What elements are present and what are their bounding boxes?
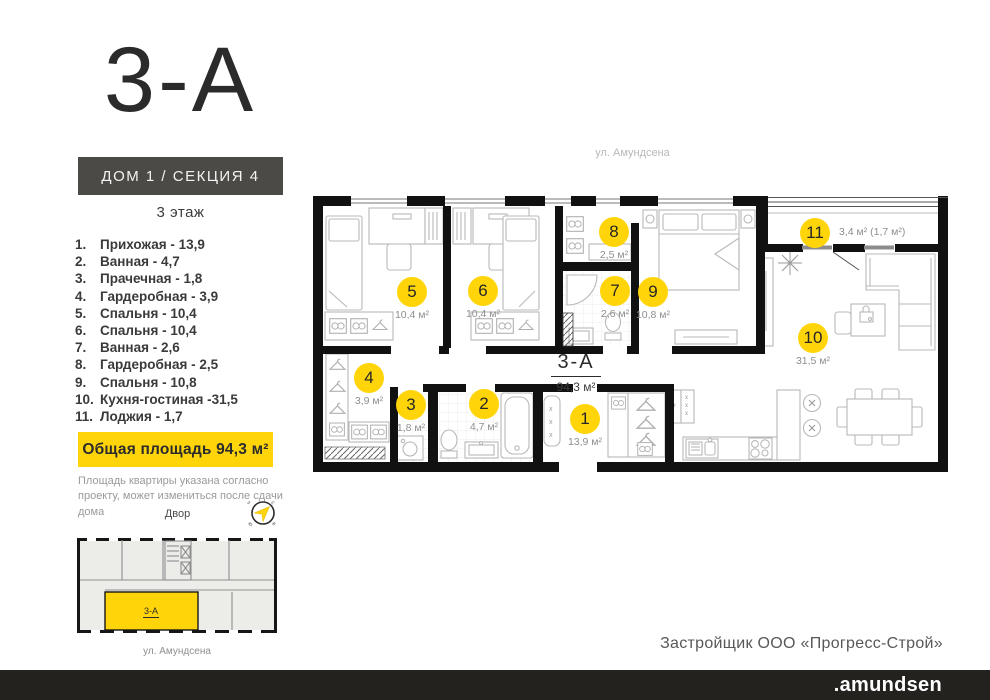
room-list-item: 4.Гардеробная - 3,9 — [75, 288, 310, 305]
plan-street-label: ул. Амундсена — [520, 147, 745, 159]
room-number: 1 — [570, 404, 600, 434]
floor-label: 3 этаж — [78, 204, 283, 221]
compass-icon: с в ю з — [244, 494, 282, 532]
room-list-item: 1.Прихожая - 13,9 — [75, 236, 310, 253]
room-list-item: 9.Спальня - 10,8 — [75, 374, 310, 391]
room-list-item: 6.Спальня - 10,4 — [75, 322, 310, 339]
room-area-label: 1,8 м² — [361, 422, 461, 434]
room-area-label: 10,8 м² — [603, 309, 703, 321]
footer-bar: .amundsen — [0, 670, 990, 700]
plant-icon — [778, 251, 802, 275]
building-section-miniplan: 3-А — [77, 538, 277, 633]
total-area-box: Общая площадь 94,3 м² — [78, 432, 273, 467]
building-section-box: ДОМ 1 / СЕКЦИЯ 4 — [78, 157, 283, 195]
svg-text:x: x — [685, 411, 688, 417]
room-area-label: 10,4 м² — [433, 308, 533, 320]
miniplan-unit-label: 3-А — [144, 606, 158, 616]
room-number: 11 — [800, 218, 830, 248]
bedroom9-furniture — [643, 210, 755, 344]
compass-south: ю — [246, 521, 253, 528]
plan-unit-label: 3-А 94,3 м² — [541, 351, 611, 394]
room-number: 10 — [798, 323, 828, 353]
plan-unit-area: 94,3 м² — [541, 380, 611, 394]
room-number: 2 — [469, 389, 499, 419]
room-number: 6 — [468, 276, 498, 306]
livingroom10-furniture — [759, 251, 935, 350]
compass-east: в — [270, 521, 276, 527]
room-list: 1.Прихожая - 13,92.Ванная - 4,73.Прачечн… — [75, 236, 310, 425]
room-number: 7 — [600, 276, 630, 306]
dining-set — [837, 389, 922, 445]
room-list-item: 8.Гардеробная - 2,5 — [75, 356, 310, 373]
room-list-item: 2.Ванная - 4,7 — [75, 253, 310, 270]
developer-label: Застройщик ООО «Прогресс-Строй» — [660, 635, 943, 653]
courtyard-label: Двор — [130, 508, 225, 520]
room-list-item: 11.Лоджия - 1,7 — [75, 408, 310, 425]
room-number: 8 — [599, 217, 629, 247]
svg-text:x: x — [549, 406, 553, 413]
svg-text:x: x — [549, 419, 553, 426]
miniplan-street-label: ул. Амундсена — [77, 646, 277, 657]
room-list-item: 10.Кухня-гостиная -31,5 — [75, 391, 310, 408]
svg-text:x: x — [685, 403, 688, 409]
flat-plan-page: 3-А ДОМ 1 / СЕКЦИЯ 4 3 этаж 1.Прихожая -… — [0, 0, 990, 700]
svg-text:x: x — [685, 395, 688, 401]
room-list-item: 3.Прачечная - 1,8 — [75, 270, 310, 287]
compass-west: з — [245, 500, 251, 506]
hatched-niche — [325, 447, 385, 459]
desk-chair — [835, 312, 851, 334]
room-area-label: 13,9 м² — [535, 436, 635, 448]
room-number: 5 — [397, 277, 427, 307]
room-list-item: 5.Спальня - 10,4 — [75, 305, 310, 322]
room-area-label: 3,4 м² (1,7 м²) — [839, 226, 959, 238]
room-area-label: 2,5 м² — [564, 249, 664, 261]
unit-title: 3-А — [60, 30, 300, 131]
kitchen-furniture: * xxx — [668, 390, 821, 460]
loggia-sliding-door — [833, 252, 859, 270]
room-list-item: 7.Ванная - 2,6 — [75, 339, 310, 356]
room-area-label: 31,5 м² — [763, 355, 863, 367]
laundry-washer — [397, 436, 423, 460]
room-number: 9 — [638, 277, 668, 307]
plan-unit-code: 3-А — [551, 351, 600, 377]
brand-logo: .amundsen — [834, 670, 942, 700]
bedroom6-furniture — [453, 208, 539, 340]
room-area-label: 3,9 м² — [319, 395, 419, 407]
room-number: 4 — [354, 363, 384, 393]
